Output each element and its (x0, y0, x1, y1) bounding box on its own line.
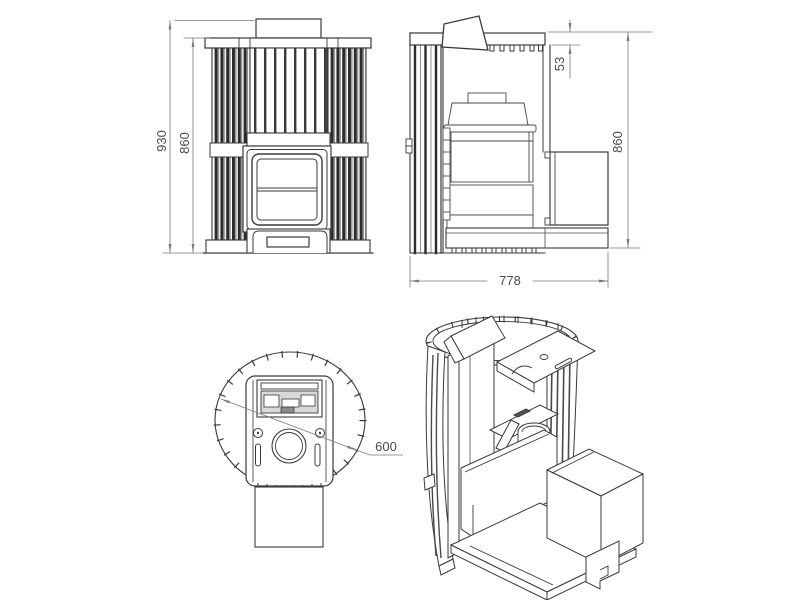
right-column-clamp (326, 143, 368, 157)
right-column-plinth (326, 240, 370, 253)
dim-label-53: 53 (552, 57, 567, 71)
dim-side-778: 778 (410, 252, 608, 288)
stove-drawing: 930 860 (0, 0, 800, 600)
door-top-band (247, 133, 330, 146)
side-clamp-tab (406, 139, 412, 146)
ash-drawer (247, 229, 330, 253)
damper-recess (257, 380, 322, 417)
drawer-handle-slot (267, 237, 309, 247)
isometric-view (424, 316, 643, 600)
side-right-wall (543, 45, 550, 152)
vent-slot (315, 444, 320, 466)
dim-label-778: 778 (499, 273, 521, 288)
chimney-stub (442, 16, 488, 50)
dim-label-860-front: 860 (177, 132, 192, 154)
iso-top-deck (497, 331, 595, 392)
top-band (205, 38, 371, 48)
dim-side-860: 860 (610, 32, 640, 248)
chimney-collar (256, 19, 321, 38)
side-tunnel (545, 152, 608, 225)
dim-front-860: 860 (177, 38, 210, 253)
iso-cut-post (448, 350, 459, 558)
side-band-teeth (490, 45, 543, 51)
dim-label-860-side: 860 (610, 131, 625, 153)
dim-side-53: 53 (548, 20, 652, 78)
side-slats (406, 33, 443, 253)
top-plate (246, 376, 333, 491)
front-grille (250, 48, 327, 133)
firebox-door (243, 146, 331, 232)
left-column-plinth (206, 240, 250, 253)
top-tunnel (255, 487, 323, 547)
technical-drawing-page: 930 860 (0, 0, 800, 600)
top-view: 600 (215, 352, 403, 547)
front-view: 930 860 (154, 19, 373, 253)
door-window (257, 159, 317, 220)
side-clamp-tab (406, 146, 412, 153)
vent-slot (256, 444, 261, 466)
dim-label-600: 600 (375, 439, 397, 454)
flue-opening (272, 429, 306, 463)
dim-label-930: 930 (154, 130, 169, 152)
side-firebox (443, 93, 536, 228)
side-view: 53 860 778 (406, 16, 652, 288)
right-column (326, 48, 370, 253)
